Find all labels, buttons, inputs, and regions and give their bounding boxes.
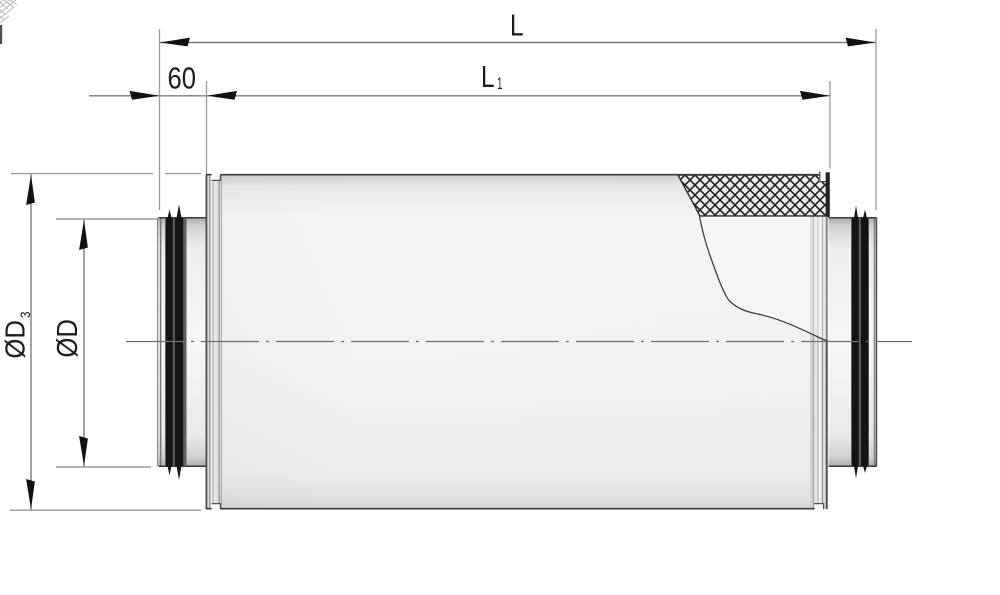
svg-text:3: 3 <box>18 312 33 319</box>
svg-text:L: L <box>510 8 524 43</box>
svg-text:ØD: ØD <box>52 319 84 358</box>
svg-text:ØD: ØD <box>0 320 31 359</box>
svg-text:1: 1 <box>497 75 503 93</box>
svg-text:L: L <box>481 59 495 94</box>
svg-text:60: 60 <box>168 61 197 96</box>
